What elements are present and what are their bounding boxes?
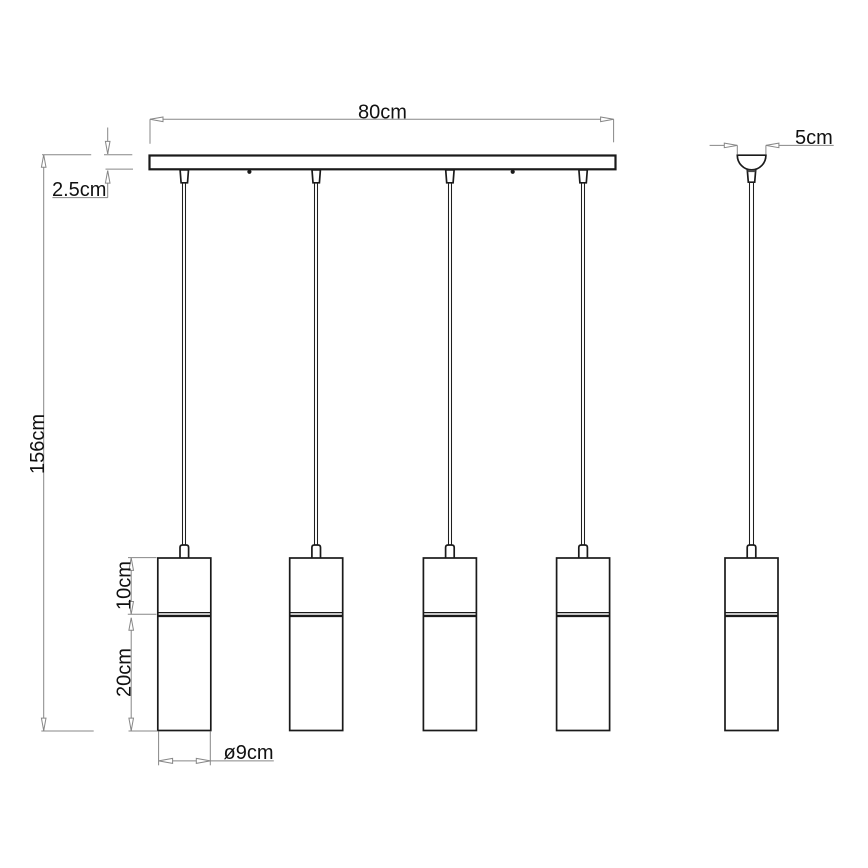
svg-text:2.5cm: 2.5cm	[52, 179, 106, 201]
svg-text:5cm: 5cm	[795, 127, 833, 149]
svg-text:20cm: 20cm	[114, 648, 136, 697]
svg-text:ø9cm: ø9cm	[224, 742, 274, 764]
svg-text:80cm: 80cm	[358, 102, 407, 124]
svg-text:10cm: 10cm	[114, 561, 136, 610]
svg-text:156cm: 156cm	[27, 414, 49, 474]
